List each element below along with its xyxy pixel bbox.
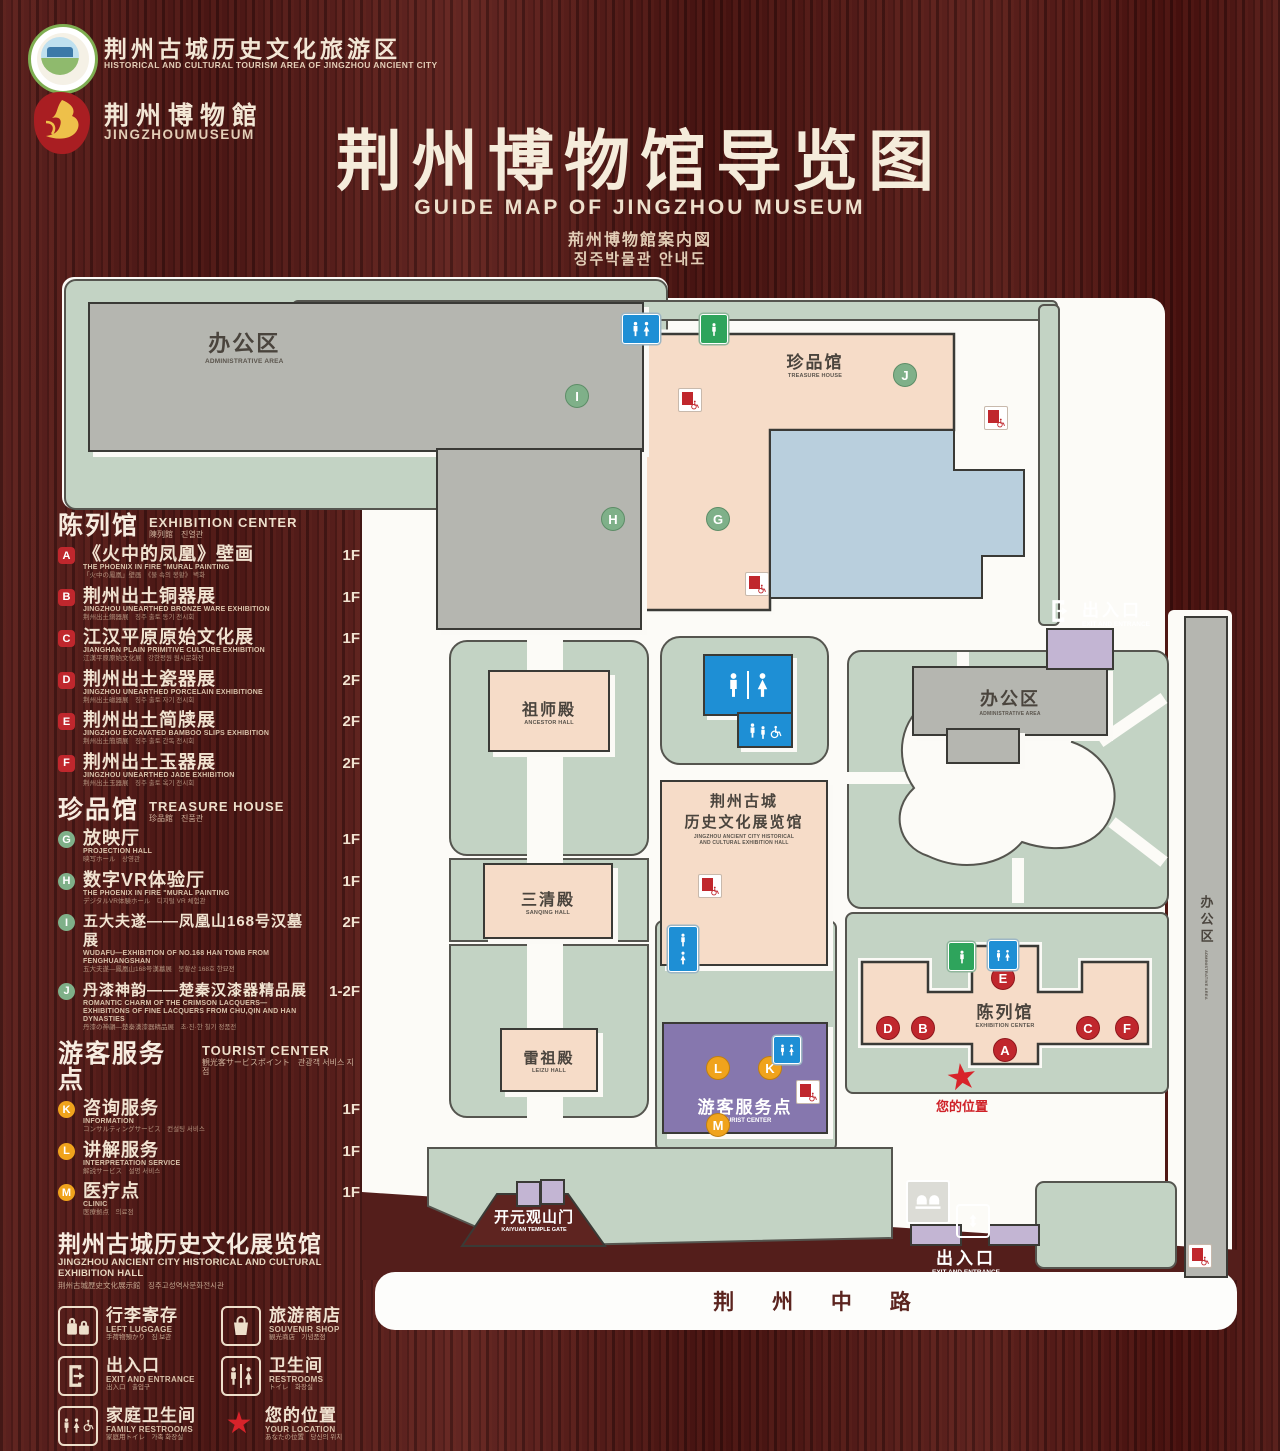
marker-f: F: [1115, 1016, 1139, 1040]
treasure-label-zh: 珍品馆: [760, 348, 870, 373]
badge-i: I: [58, 914, 75, 931]
row-sub: 五大夫遂—鳳凰山168号漢墓展 봉황산 168호 한묘전: [83, 966, 311, 974]
sanqing-hall: 三清殿 SANQING HALL: [483, 863, 613, 939]
legend: 陈列馆 EXHIBITION CENTER 陳列館 진열관 A 《火中的凤凰》壁…: [58, 503, 360, 1451]
row-en: JINGZHOU UNEARTHED PORCELAIN EXHIBITIONE: [83, 689, 311, 697]
leizu-hall-label-en: LEIZU HALL: [532, 1068, 566, 1074]
admin-building-west: 办公区 ADMINISTRATIVE AREA: [88, 302, 644, 452]
updown-arrows-icon: [956, 1204, 990, 1238]
row-floor: 2F: [342, 672, 360, 689]
east-exit-en: EXIT AND ENTRANCE: [1082, 621, 1202, 628]
row-en: JINGZHOU UNEARTHED JADE EXHIBITION: [83, 772, 311, 780]
fac-en: YOUR LOCATION: [265, 1425, 342, 1434]
south-exit-zh: 出入口: [906, 1244, 1026, 1269]
hall-title-en: JINGZHOU ANCIENT CITY HISTORICAL AND CUL…: [58, 1257, 360, 1279]
guide-map-poster: 荆州古城历史文化旅游区 HISTORICAL AND CULTURAL TOUR…: [0, 0, 1280, 1451]
south-exit-label: 出入口 EXIT AND ENTRANCE: [906, 1244, 1026, 1276]
treasure-house-label: 珍品馆 TREASURE HOUSE: [760, 348, 870, 379]
leizu-hall-label-zh: 雷祖殿: [523, 1047, 574, 1068]
fac-zh: 您的位置: [265, 1406, 342, 1425]
section-title-zh: 游客服务点: [58, 1041, 192, 1093]
fac-en: SOUVENIR SHOP: [269, 1325, 341, 1334]
east-exit-label: 出入口 EXIT AND ENTRANCE: [1082, 596, 1202, 628]
section-title-en: EXHIBITION CENTER: [149, 513, 297, 530]
marker-d: D: [876, 1016, 900, 1040]
page-title-zh: 荆州博物馆导览图: [285, 108, 995, 204]
child-icon: [759, 726, 767, 739]
restroom-icon: [773, 1036, 801, 1064]
path-east-green-strip: [1038, 304, 1060, 626]
fac-sub: 出入口 출입구: [106, 1384, 195, 1392]
section-title-zh: 陈列馆: [58, 513, 139, 539]
row-en: THE PHOENIX IN FIRE "MURAL PAINTING: [83, 564, 311, 572]
row-sub: 荆州出土磁器展 징주 출토 자기 전시회: [83, 697, 311, 705]
marker-b: B: [911, 1016, 935, 1040]
south-gate-left: [910, 1224, 962, 1246]
marker-g: G: [706, 507, 730, 531]
facility-family-restrooms: 家庭卫生间FAMILY RESTROOMS家庭用トイレ 가족 화장실: [58, 1406, 221, 1446]
row-zh: 荆州出土简牍展: [83, 711, 311, 730]
row-en: CLINIC: [83, 1201, 311, 1209]
facility-your-location: ★ 您的位置YOUR LOCATIONあなたの位置 당신의 위치: [221, 1406, 360, 1446]
facility-exit-entrance: 出入口EXIT AND ENTRANCE出入口 출입구: [58, 1356, 221, 1396]
exhall-label-en2: AND CULTURAL EXHIBITION HALL: [699, 840, 788, 846]
legend-row-i: I 五大夫遂——凤凰山168号汉墓展WUDAFU—EXHIBITION OF N…: [58, 912, 360, 974]
badge-c: C: [58, 630, 75, 647]
badge-h: H: [58, 873, 75, 890]
accessible-elevator-icon: [984, 406, 1008, 430]
restroom-building-central: [703, 654, 793, 716]
your-location-star-icon: ★: [944, 1061, 980, 1095]
fac-en: FAMILY RESTROOMS: [106, 1425, 196, 1434]
accessible-elevator-icon: [698, 874, 722, 898]
hall-title-zh: 荆州古城历史文化展览馆: [58, 1231, 360, 1257]
row-zh: 五大夫遂——凤凰山168号汉墓展: [83, 912, 311, 950]
legend-row-c: C 江汉平原原始文化展JIANGHAN PLAIN PRIMITIVE CULT…: [58, 628, 360, 663]
badge-e: E: [58, 713, 75, 730]
row-sub: 解説サービス 설명 서비스: [83, 1168, 311, 1176]
row-sub: 丹漆の神韻—楚秦漢漆器精品展 초·진·한 칠기 정품전: [83, 1024, 311, 1032]
marker-i: I: [565, 384, 589, 408]
row-zh: 数字VR体验厅: [83, 871, 311, 890]
excenter-label-zh: 陈列馆: [950, 998, 1060, 1023]
fac-sub: 手荷物預かり 짐 보관: [106, 1334, 178, 1342]
legend-row-g: G 放映厅PROJECTION HALL映写ホール 상영관 1F: [58, 829, 360, 864]
row-zh: 荆州出土铜器展: [83, 587, 311, 606]
restroom-icon: [221, 1356, 261, 1396]
section-title-sub: 珍品館 진품관: [149, 814, 284, 823]
legend-row-e: E 荆州出土简牍展JINGZHOU EXCAVATED BAMBOO SLIPS…: [58, 711, 360, 746]
legend-row-d: D 荆州出土瓷器展JINGZHOU UNEARTHED PORCELAIN EX…: [58, 670, 360, 705]
restroom-icon: [668, 926, 698, 972]
row-floor: 1F: [342, 1101, 360, 1118]
row-sub: 医療拠点 의료점: [83, 1209, 311, 1217]
row-floor: 1F: [342, 831, 360, 848]
tourism-area-name-zh: 荆州古城历史文化旅游区: [104, 30, 401, 64]
facility-souvenir-shop: 旅游商店SOUVENIR SHOP観光商店 기념품점: [221, 1306, 360, 1346]
facility-restrooms: 卫生间RESTROOMSトイレ 화장실: [221, 1356, 360, 1396]
fac-en: EXIT AND ENTRANCE: [106, 1375, 195, 1384]
exit-icon: [58, 1356, 98, 1396]
tourist-center-building: 游客服务点 TOURIST CENTER: [662, 1022, 828, 1134]
row-sub: 荆州出土簡牘展 징주 출토 간독 전시회: [83, 738, 311, 746]
badge-j: J: [58, 983, 75, 1000]
accessible-elevator-icon: [745, 572, 769, 596]
sanqing-hall-label-en: SANQING HALL: [526, 910, 570, 916]
row-en: INTERPRETATION SERVICE: [83, 1160, 311, 1168]
row-sub: 江漢平原原始文化展 강한평원 원시문화전: [83, 655, 311, 663]
shopping-bag-icon: [221, 1306, 261, 1346]
row-floor: 1F: [342, 1143, 360, 1160]
row-floor: 1F: [342, 630, 360, 647]
accessible-elevator-icon: [678, 388, 702, 412]
gate-label-en: KAIYUAN TEMPLE GATE: [478, 1227, 590, 1233]
admin-strip-label-zh: 办公区: [1199, 895, 1214, 946]
tourism-logo-building-icon: [47, 47, 73, 57]
row-en: INFORMATION: [83, 1118, 311, 1126]
fac-zh: 家庭卫生间: [106, 1406, 196, 1425]
exit-icon: [1048, 598, 1074, 629]
section-title-en: TREASURE HOUSE: [149, 797, 284, 814]
facility-legend-grid: 行李寄存LEFT LUGGAGE手荷物預かり 짐 보관 旅游商店SOUVENIR…: [58, 1306, 360, 1451]
gate-kiosk-right: [540, 1179, 565, 1205]
south-gate-right: [988, 1224, 1040, 1246]
badge-b: B: [58, 589, 75, 606]
legend-row-b: B 荆州出土铜器展JINGZHOU UNEARTHED BRONZE WARE …: [58, 587, 360, 622]
row-floor: 1F: [342, 1184, 360, 1201]
your-location-label: 您的位置: [912, 1096, 1012, 1115]
marker-l: L: [706, 1056, 730, 1080]
tourism-area-name-en: HISTORICAL AND CULTURAL TOURISM AREA OF …: [104, 60, 438, 70]
tourism-area-logo: [28, 24, 98, 94]
marker-a: A: [993, 1038, 1017, 1062]
man-icon: [726, 672, 741, 698]
row-sub: 荆州出土銅器展 징주 출토 동기 전시회: [83, 614, 311, 622]
row-floor: 2F: [342, 914, 360, 931]
museum-phoenix-logo: [34, 92, 90, 154]
accessible-elevator-icon: [1188, 1244, 1212, 1268]
family-restroom-building-central: [737, 712, 793, 748]
admin-east-label-en: ADMINISTRATIVE AREA: [979, 711, 1040, 717]
row-en: THE PHOENIX IN FIRE "MURAL PAINTING: [83, 890, 311, 898]
legend-section-exhibition-center: 陈列馆 EXHIBITION CENTER 陳列館 진열관: [58, 513, 360, 539]
row-sub: 荆州出土玉器展 징주 출토 옥기 전시회: [83, 780, 311, 788]
row-sub: デジタルVR体験ホール 디지털 VR 체험관: [83, 898, 311, 906]
legend-row-a: A 《火中的凤凰》壁画THE PHOENIX IN FIRE "MURAL PA…: [58, 545, 360, 580]
row-floor: 1F: [342, 547, 360, 564]
row-sub: コンサルティングサービス 컨설팅 서비스: [83, 1126, 311, 1134]
star-icon: ★: [221, 1406, 257, 1442]
family-restroom-icon: [58, 1406, 98, 1446]
row-en: JINGZHOU EXCAVATED BAMBOO SLIPS EXHIBITI…: [83, 730, 311, 738]
row-en: WUDAFU—EXHIBITION OF NO.168 HAN TOMB FRO…: [83, 950, 311, 966]
elevator-icon: [948, 942, 975, 971]
row-zh: 咨询服务: [83, 1099, 311, 1118]
row-zh: 放映厅: [83, 829, 311, 848]
marker-j: J: [893, 363, 917, 387]
gate-kiosk-left: [516, 1181, 541, 1207]
row-en: ROMANTIC CHARM OF THE CRIMSON LACQUERS— …: [83, 1000, 311, 1024]
badge-f: F: [58, 755, 75, 772]
restroom-icon: [988, 940, 1018, 970]
admin-building-east: 办公区 ADMINISTRATIVE AREA: [912, 666, 1108, 736]
row-zh: 荆州出土瓷器展: [83, 670, 311, 689]
legend-row-f: F 荆州出土玉器展JINGZHOU UNEARTHED JADE EXHIBIT…: [58, 753, 360, 788]
luggage-icon: [58, 1306, 98, 1346]
legend-section-treasure-house: 珍品馆 TREASURE HOUSE 珍品館 진품관: [58, 797, 360, 823]
hall-title-sub: 荆州古城歴史文化展示館 징주고성역사문화전시관: [58, 1281, 360, 1290]
row-floor: 1F: [342, 873, 360, 890]
marker-m: M: [706, 1113, 730, 1137]
row-zh: 《火中的凤凰》壁画: [83, 545, 311, 564]
admin-building-west-annex: [436, 448, 642, 630]
section-title-sub: 観光客サービスポイント 관광객 서비스 지점: [202, 1058, 360, 1076]
exhall-label-zh2: 历史文化展览馆: [684, 811, 803, 832]
row-en: JIANGHAN PLAIN PRIMITIVE CULTURE EXHIBIT…: [83, 647, 311, 655]
admin-east-label-zh: 办公区: [980, 685, 1040, 711]
legend-row-j: J 丹漆神韵——楚秦汉漆器精品展ROMANTIC CHARM OF THE CR…: [58, 981, 360, 1032]
elevator-icon: [700, 314, 728, 344]
row-sub: 「火中の鳳凰」壁画 《불 속의 봉황》 벽화: [83, 572, 311, 580]
section-title-zh: 珍品馆: [58, 797, 139, 823]
facility-left-luggage: 行李寄存LEFT LUGGAGE手荷物預かり 짐 보관: [58, 1306, 221, 1346]
admin-west-label-zh: 办公区: [205, 326, 284, 358]
fac-zh: 行李寄存: [106, 1306, 178, 1325]
excenter-label-en: EXHIBITION CENTER: [950, 1023, 1060, 1029]
treasure-label-en: TREASURE HOUSE: [760, 373, 870, 379]
legend-section-tourist-center: 游客服务点 TOURIST CENTER 観光客サービスポイント 관광객 서비스…: [58, 1041, 360, 1093]
row-zh: 荆州出土玉器展: [83, 753, 311, 772]
fac-zh: 旅游商店: [269, 1306, 341, 1325]
badge-g: G: [58, 831, 75, 848]
row-zh: 讲解服务: [83, 1141, 311, 1160]
fac-sub: あなたの位置 당신의 위치: [265, 1434, 342, 1442]
legend-row-m: M 医疗点CLINIC医療拠点 의료점 1F: [58, 1182, 360, 1217]
sanqing-hall-label-zh: 三清殿: [521, 886, 575, 910]
page-title-en: GUIDE MAP OF JINGZHOU MUSEUM: [285, 196, 995, 220]
row-floor: 1-2F: [329, 983, 360, 1000]
accessible-elevator-icon: [796, 1080, 820, 1104]
badge-k: K: [58, 1101, 75, 1118]
woman-icon: [755, 672, 770, 698]
fac-zh: 出入口: [106, 1356, 195, 1375]
row-en: JINGZHOU UNEARTHED BRONZE WARE EXHIBITIO…: [83, 606, 311, 614]
badge-d: D: [58, 672, 75, 689]
ancestor-hall-label-en: ANCESTOR HALL: [524, 720, 574, 726]
wheelchair-icon: [769, 725, 783, 739]
row-zh: 丹漆神韵——楚秦汉漆器精品展: [83, 981, 311, 1000]
leizu-hall: 雷祖殿 LEIZU HALL: [500, 1028, 598, 1092]
fac-sub: 観光商店 기념품점: [269, 1334, 341, 1342]
south-exit-en: EXIT AND ENTRANCE: [906, 1269, 1026, 1276]
fac-en: LEFT LUGGAGE: [106, 1325, 178, 1334]
badge-m: M: [58, 1184, 75, 1201]
east-exit-zh: 出入口: [1082, 596, 1202, 621]
phoenix-icon: [34, 92, 90, 154]
row-zh: 医疗点: [83, 1182, 311, 1201]
kaiyuan-gate-label: 开元观山门 KAIYUAN TEMPLE GATE: [478, 1206, 590, 1233]
exhibition-center-label: 陈列馆 EXHIBITION CENTER: [950, 998, 1060, 1029]
legend-row-l: L 讲解服务INTERPRETATION SERVICE解説サービス 설명 서비…: [58, 1141, 360, 1176]
row-zh: 江汉平原原始文化展: [83, 628, 311, 647]
fac-en: RESTROOMS: [269, 1375, 323, 1384]
fac-sub: トイレ 화장실: [269, 1384, 323, 1392]
badge-l: L: [58, 1143, 75, 1160]
gate-label-zh: 开元观山门: [478, 1206, 590, 1227]
east-gate-building: [1046, 628, 1114, 670]
row-sub: 映写ホール 상영관: [83, 856, 311, 864]
man-icon: [748, 722, 757, 739]
row-en: PROJECTION HALL: [83, 848, 311, 856]
fac-sub: 家庭用トイレ 가족 화장실: [106, 1434, 196, 1442]
row-floor: 1F: [342, 589, 360, 606]
page-title-ja: 荊州博物館案内図: [285, 226, 995, 250]
marker-c: C: [1076, 1016, 1100, 1040]
admin-strip-east: 办公区 ADMINISTRATIVE AREA: [1184, 616, 1228, 1278]
exhall-label-zh1: 荆州古城: [710, 790, 778, 811]
page-title-ko: 징주박물관 안내도: [285, 248, 995, 269]
section-title-en: TOURIST CENTER: [202, 1041, 360, 1058]
row-floor: 2F: [342, 713, 360, 730]
museum-name-en: JINGZHOUMUSEUM: [104, 127, 255, 142]
ancestor-hall: 祖师殿 ANCESTOR HALL: [488, 670, 610, 752]
legend-row-k: K 咨询服务INFORMATIONコンサルティングサービス 컨설팅 서비스 1F: [58, 1099, 360, 1134]
admin-building-east-annex: [946, 728, 1020, 764]
fac-zh: 卫生间: [269, 1356, 323, 1375]
legend-row-h: H 数字VR体验厅THE PHOENIX IN FIRE "MURAL PAIN…: [58, 871, 360, 906]
road-label: 荆 州 中 路: [700, 1286, 940, 1316]
section-title-sub: 陳列館 진열관: [149, 530, 297, 539]
badge-a: A: [58, 547, 75, 564]
marker-h: H: [601, 507, 625, 531]
admin-strip-label-en: ADMINISTRATIVE AREA: [1204, 950, 1209, 1000]
row-floor: 2F: [342, 755, 360, 772]
security-scanner-icon: [906, 1180, 950, 1224]
restroom-icon: [622, 314, 660, 344]
admin-west-label-en: ADMINISTRATIVE AREA: [205, 358, 284, 365]
ancestor-hall-label-zh: 祖师殿: [522, 696, 576, 720]
